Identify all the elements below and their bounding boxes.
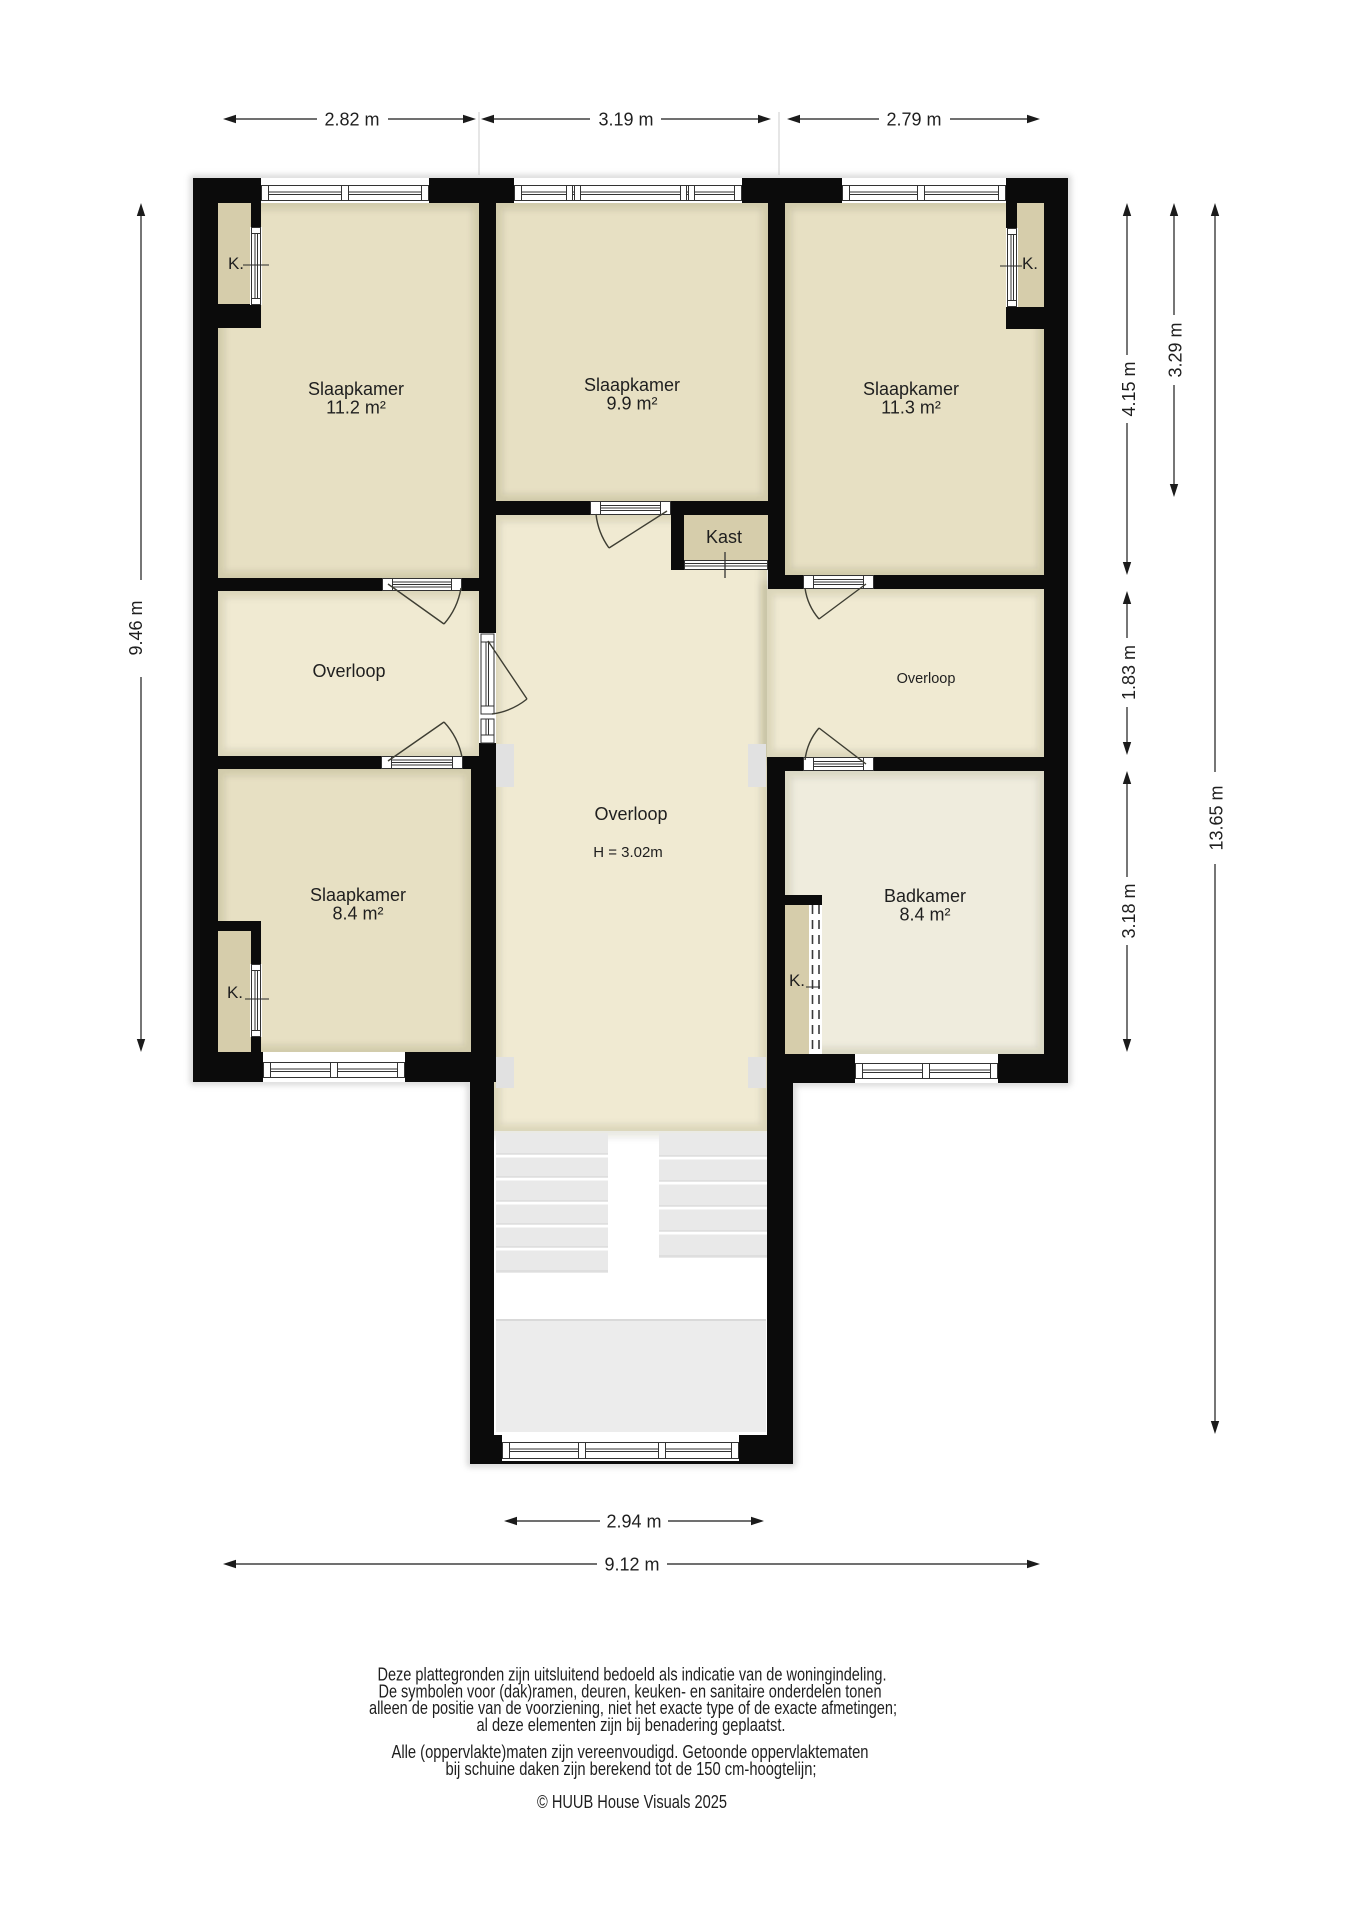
svg-text:11.2 m²: 11.2 m² [326, 398, 386, 418]
svg-text:2.79 m: 2.79 m [886, 110, 941, 130]
svg-text:3.18 m: 3.18 m [1119, 883, 1139, 938]
svg-text:9.46 m: 9.46 m [126, 600, 146, 655]
svg-text:11.3 m²: 11.3 m² [881, 398, 941, 418]
svg-text:Slaapkamer: Slaapkamer [310, 885, 406, 905]
svg-text:© HUUB House Visuals 2025: © HUUB House Visuals 2025 [537, 1792, 727, 1812]
svg-text:4.15 m: 4.15 m [1119, 361, 1139, 416]
svg-text:2.82 m: 2.82 m [324, 110, 379, 130]
svg-text:9.12 m: 9.12 m [604, 1555, 659, 1575]
svg-text:Slaapkamer: Slaapkamer [863, 379, 959, 399]
svg-text:K.: K. [227, 983, 243, 1002]
svg-text:13.65 m: 13.65 m [1207, 785, 1227, 850]
svg-text:1.83 m: 1.83 m [1119, 645, 1139, 700]
svg-text:8.4 m²: 8.4 m² [332, 904, 383, 924]
svg-text:Badkamer: Badkamer [884, 886, 966, 906]
svg-text:Overloop: Overloop [594, 804, 667, 824]
svg-text:2.94 m: 2.94 m [606, 1512, 661, 1532]
svg-text:K.: K. [789, 971, 805, 990]
svg-text:H = 3.02m: H = 3.02m [593, 844, 663, 861]
svg-text:3.19 m: 3.19 m [598, 110, 653, 130]
svg-text:Kast: Kast [706, 527, 742, 547]
svg-text:bij schuine daken zijn bereken: bij schuine daken zijn berekend tot de 1… [446, 1759, 817, 1779]
svg-text:K.: K. [228, 254, 244, 273]
svg-text:Slaapkamer: Slaapkamer [308, 379, 404, 399]
svg-text:3.29 m: 3.29 m [1166, 322, 1186, 377]
svg-text:Slaapkamer: Slaapkamer [584, 375, 680, 395]
svg-text:9.9 m²: 9.9 m² [606, 394, 657, 414]
svg-text:Overloop: Overloop [897, 671, 956, 687]
svg-text:K.: K. [1022, 254, 1038, 273]
svg-text:Overloop: Overloop [312, 661, 385, 681]
svg-text:al deze elementen zijn bij ben: al deze elementen zijn bij benadering ge… [477, 1715, 786, 1735]
svg-text:8.4 m²: 8.4 m² [899, 905, 950, 925]
